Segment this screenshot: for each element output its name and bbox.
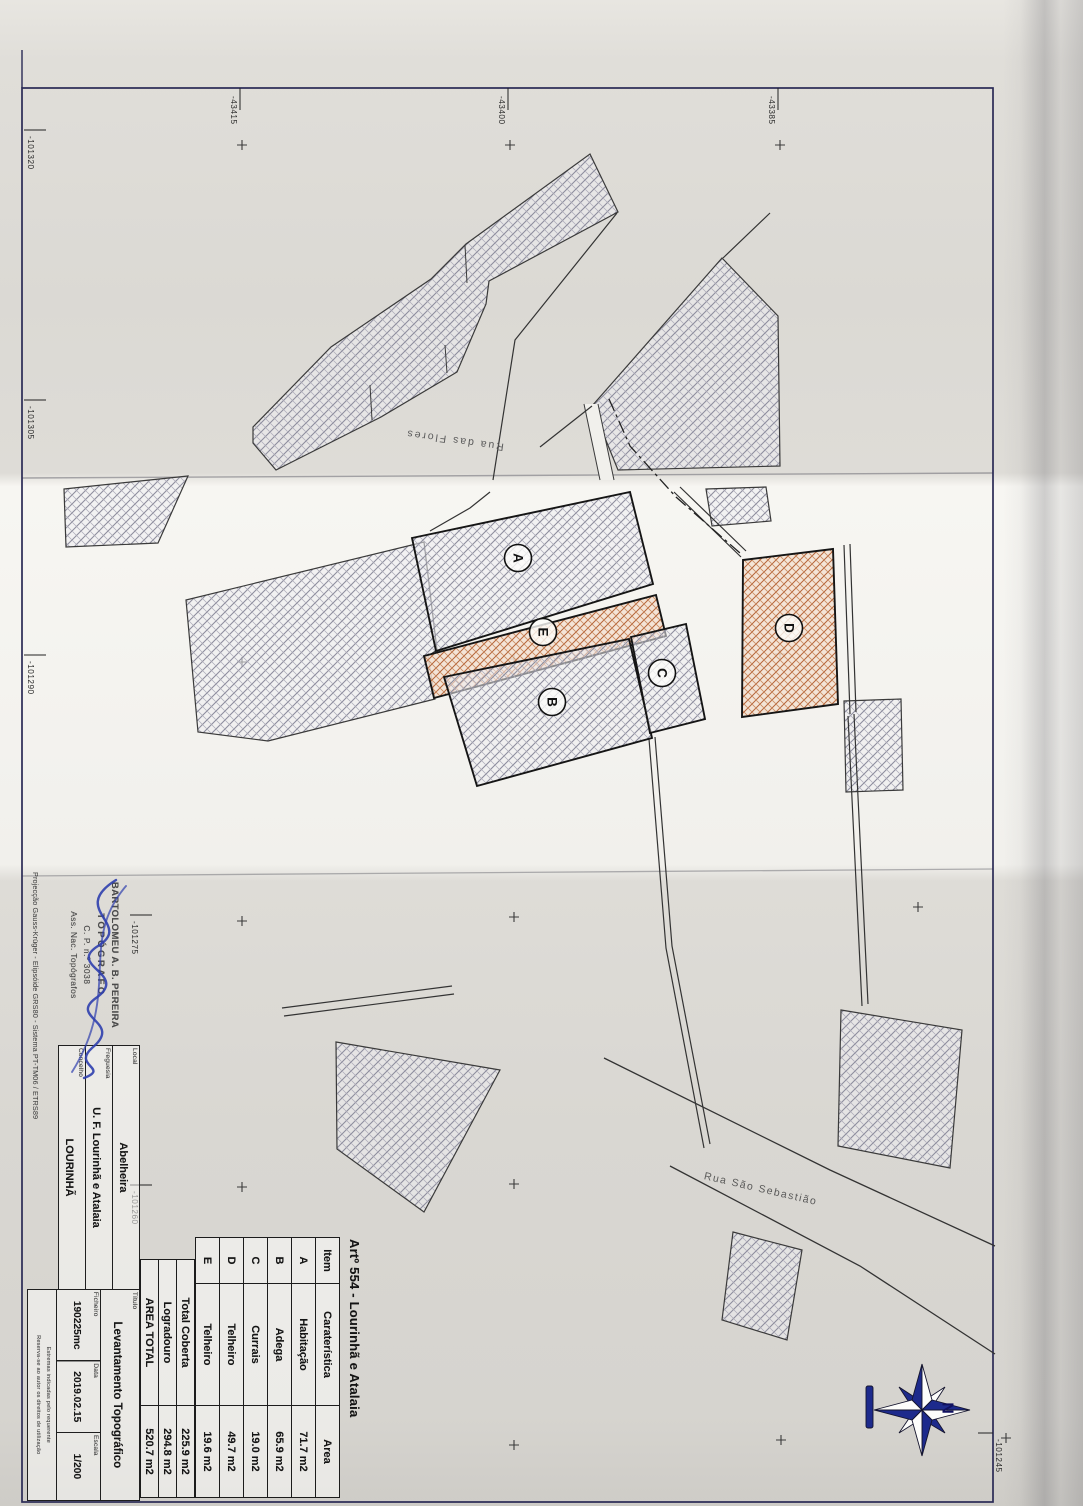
table-row: C Currais 19.0 m2	[244, 1238, 268, 1498]
fine-print: Estremas indicadas pelo requerente Reser…	[27, 1289, 57, 1501]
field-value: Levantamento Topográfico	[111, 1290, 123, 1500]
file-date-scale-row: Ficheiro 190225mc Data 2019.02.15 Escala…	[56, 1289, 101, 1501]
total-row: AREA TOTAL 520.7 m2	[141, 1260, 159, 1498]
header-area: Area	[316, 1406, 340, 1498]
cell-area: 19.0 m2	[244, 1406, 268, 1498]
parcel-letter: D	[782, 623, 797, 633]
parcel-label-c: C	[649, 660, 676, 687]
neighbour-building	[186, 542, 437, 741]
field-value: 2019.02.15	[71, 1361, 82, 1432]
parcel-letter: A	[511, 553, 526, 563]
neighbour-row-rua-das-flores	[253, 154, 618, 470]
artigo-title: Artº 554 - Lourinhã e Atalaia	[340, 1237, 362, 1501]
areas-table: Item Caraterística Area A Habitação 71.7…	[195, 1237, 340, 1498]
field-value: LOURINHÃ	[63, 1046, 75, 1289]
header-item: Item	[316, 1238, 340, 1284]
scanned-survey-sheet: -43415 -43400 -43385 -101320 -101305 -10…	[0, 0, 1083, 1506]
grid-label: -43385	[767, 96, 776, 125]
cell-caracteristica: Telheiro	[220, 1284, 244, 1406]
parcel-label-e: E	[530, 619, 557, 646]
parcel-letter: B	[545, 697, 560, 707]
field-ficheiro: Ficheiro 190225mc	[56, 1289, 101, 1362]
total-value: 520.7 m2	[141, 1406, 159, 1498]
neighbour-building	[706, 487, 771, 526]
grid-label: -43415	[229, 96, 238, 125]
field-label: Título	[131, 1292, 138, 1309]
parcel-label-a: A	[505, 545, 532, 572]
total-label: AREA TOTAL	[141, 1260, 159, 1406]
cell-caracteristica: Currais	[244, 1284, 268, 1406]
field-value: 190225mc	[71, 1290, 82, 1361]
table-row: D Telheiro 49.7 m2	[220, 1238, 244, 1498]
field-label: Escala	[92, 1435, 99, 1456]
fine-print-line: Reserva-se ao autor os direitos de utili…	[33, 1290, 43, 1500]
grid-label: -101245	[994, 1439, 1003, 1473]
neighbour-building	[64, 476, 188, 547]
field-value: 1/200	[71, 1433, 82, 1500]
neighbour-building	[336, 1042, 500, 1212]
cell-area: 19.6 m2	[196, 1406, 220, 1498]
parcel-label-b: B	[539, 689, 566, 716]
street-name-rua-das-flores: Rua das Flores	[405, 427, 505, 453]
neighbour-building	[722, 1232, 802, 1340]
cell-area: 65.9 m2	[268, 1406, 292, 1498]
cell-item: E	[196, 1238, 220, 1284]
table-header-row: Item Caraterística Area	[316, 1238, 340, 1498]
cell-item: B	[268, 1238, 292, 1284]
total-value: 225.9 m2	[177, 1406, 195, 1498]
cell-item: C	[244, 1238, 268, 1284]
header-caracteristica: Caraterística	[316, 1284, 340, 1406]
cell-area: 49.7 m2	[220, 1406, 244, 1498]
cell-item: D	[220, 1238, 244, 1284]
field-label: Ficheiro	[92, 1292, 99, 1317]
total-row: Logradouro 294.8 m2	[159, 1260, 177, 1498]
table-row: A Habitação 71.7 m2	[292, 1238, 316, 1498]
cell-caracteristica: Habitação	[292, 1284, 316, 1406]
table-row: E Telheiro 19.6 m2	[196, 1238, 220, 1498]
total-label: Logradouro	[159, 1260, 177, 1406]
grid-label: -101320	[26, 136, 35, 170]
field-data: Data 2019.02.15	[56, 1360, 101, 1433]
surveyor-signature	[38, 872, 143, 1082]
subject-buildings	[412, 492, 838, 786]
totals-table: Total Coberta 225.9 m2 Logradouro 294.8 …	[140, 1259, 195, 1498]
areas-table-block: Artº 554 - Lourinhã e Atalaia Item Carat…	[130, 1237, 362, 1501]
neighbour-building	[592, 258, 780, 470]
compass-rose-icon: N	[866, 1364, 970, 1456]
total-row: Total Coberta 225.9 m2	[177, 1260, 195, 1498]
grid-label: -101305	[26, 406, 35, 440]
cell-caracteristica: Telheiro	[196, 1284, 220, 1406]
cell-area: 71.7 m2	[292, 1406, 316, 1498]
north-label: N	[939, 1402, 956, 1414]
parcel-letter: E	[536, 627, 551, 636]
neighbour-building	[844, 699, 903, 792]
cell-item: A	[292, 1238, 316, 1284]
neighbour-building	[838, 1010, 962, 1168]
field-value: U. F. Lourinhã e Atalaia	[90, 1046, 102, 1289]
grid-label: -101290	[26, 661, 35, 695]
fine-print-line: Estremas indicadas pelo requerente	[43, 1290, 53, 1500]
parcel-label-d: D	[776, 615, 803, 642]
total-value: 294.8 m2	[159, 1406, 177, 1498]
field-escala: Escala 1/200	[56, 1432, 101, 1501]
grid-label: -43400	[497, 96, 506, 125]
street-name-rua-sao-sebastiao: Rua São Sebastião	[703, 1170, 819, 1208]
field-label: Data	[92, 1363, 99, 1378]
cell-caracteristica: Adega	[268, 1284, 292, 1406]
title-block-meta-fields: Título Levantamento Topográfico Ficheiro…	[25, 1289, 140, 1501]
field-value: Abelheira	[117, 1046, 129, 1289]
field-titulo: Título Levantamento Topográfico	[100, 1289, 140, 1501]
title-block: Local Abelheira Freguesia U. F. Lourinhã…	[25, 1045, 140, 1502]
parcel-letter: C	[655, 668, 670, 678]
total-label: Total Coberta	[177, 1260, 195, 1406]
table-row: B Adega 65.9 m2	[268, 1238, 292, 1498]
